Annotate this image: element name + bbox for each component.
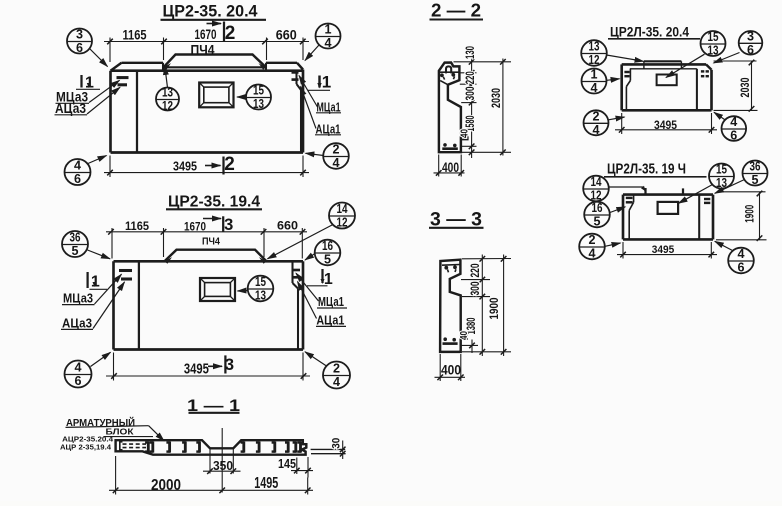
svg-text:3495: 3495 — [654, 118, 677, 132]
svg-text:2: 2 — [589, 233, 596, 247]
svg-text:15: 15 — [255, 275, 266, 289]
svg-text:4: 4 — [325, 36, 332, 50]
svg-text:660: 660 — [277, 220, 298, 232]
svg-text:2000: 2000 — [151, 477, 181, 494]
svg-text:ЦР2-35. 20.4: ЦР2-35. 20.4 — [163, 2, 259, 21]
svg-text:4: 4 — [591, 81, 598, 95]
svg-text:4: 4 — [333, 375, 340, 389]
svg-text:36: 36 — [750, 160, 761, 174]
svg-text:13: 13 — [589, 40, 600, 54]
svg-text:2030: 2030 — [489, 88, 503, 108]
svg-text:14: 14 — [337, 202, 348, 216]
svg-text:13: 13 — [162, 86, 173, 100]
svg-text:3: 3 — [224, 216, 233, 234]
svg-text:40: 40 — [458, 331, 470, 340]
svg-text:1670: 1670 — [184, 222, 206, 234]
svg-text:АЦа1: АЦа1 — [316, 313, 344, 328]
svg-text:4: 4 — [74, 159, 81, 173]
svg-text:400: 400 — [441, 362, 461, 378]
svg-text:МЦа3: МЦа3 — [63, 291, 93, 306]
svg-text:6: 6 — [74, 172, 81, 186]
svg-text:1900: 1900 — [745, 205, 757, 223]
svg-text:660: 660 — [276, 28, 297, 43]
svg-text:6: 6 — [747, 43, 754, 57]
svg-text:2: 2 — [333, 143, 340, 157]
svg-text:3495: 3495 — [184, 361, 209, 378]
svg-text:5: 5 — [324, 253, 331, 267]
svg-text:130: 130 — [465, 46, 477, 59]
svg-text:350: 350 — [213, 458, 233, 473]
svg-text:4: 4 — [738, 247, 745, 261]
svg-text:40: 40 — [458, 129, 470, 138]
svg-text:3495: 3495 — [173, 159, 197, 174]
svg-text:5: 5 — [594, 215, 601, 229]
svg-text:12: 12 — [589, 53, 600, 67]
svg-text:3: 3 — [225, 356, 234, 374]
svg-text:220: 220 — [465, 71, 477, 84]
svg-text:1495: 1495 — [254, 475, 278, 492]
svg-text:1670: 1670 — [195, 27, 217, 42]
svg-text:1900: 1900 — [487, 297, 501, 319]
svg-text:15: 15 — [716, 163, 727, 177]
svg-text:2030: 2030 — [740, 78, 752, 98]
svg-text:4: 4 — [730, 115, 737, 129]
svg-text:4: 4 — [593, 123, 600, 137]
svg-text:300: 300 — [470, 282, 482, 296]
svg-text:6: 6 — [75, 374, 82, 388]
svg-text:5: 5 — [752, 173, 759, 187]
svg-text:2: 2 — [333, 362, 340, 376]
svg-text:4: 4 — [333, 156, 340, 170]
svg-text:5: 5 — [72, 244, 79, 258]
svg-text:3495: 3495 — [652, 244, 675, 256]
svg-text:1165: 1165 — [123, 28, 147, 43]
svg-text:6: 6 — [738, 261, 745, 275]
svg-text:2: 2 — [225, 23, 236, 44]
svg-text:2: 2 — [224, 154, 235, 175]
svg-text:145: 145 — [278, 457, 296, 471]
svg-text:13: 13 — [708, 44, 719, 58]
svg-text:1: 1 — [591, 68, 598, 82]
svg-text:16: 16 — [592, 201, 603, 215]
svg-text:1165: 1165 — [125, 221, 150, 233]
svg-text:14: 14 — [591, 175, 602, 189]
svg-text:3: 3 — [76, 28, 83, 42]
svg-text:15: 15 — [708, 30, 719, 44]
svg-text:2 — 2: 2 — 2 — [431, 0, 481, 21]
svg-text:АЦа3: АЦа3 — [55, 101, 86, 116]
svg-text:ПЧ4: ПЧ4 — [202, 236, 220, 248]
svg-text:30: 30 — [331, 438, 343, 449]
svg-text:6: 6 — [76, 41, 83, 55]
svg-text:12: 12 — [162, 99, 173, 113]
svg-text:АЦа3: АЦа3 — [62, 316, 92, 331]
svg-text:ПЧ4: ПЧ4 — [191, 42, 215, 58]
svg-text:300: 300 — [465, 87, 477, 101]
svg-text:6: 6 — [730, 129, 737, 143]
svg-text:ЦР2-35. 19.4: ЦР2-35. 19.4 — [168, 194, 260, 211]
svg-text:13: 13 — [253, 97, 264, 111]
svg-text:1: 1 — [325, 23, 332, 37]
svg-text:1: 1 — [322, 73, 331, 92]
svg-text:2: 2 — [593, 109, 600, 123]
svg-text:АЦР 2-35,19.4: АЦР 2-35,19.4 — [60, 443, 112, 452]
svg-text:4: 4 — [589, 247, 596, 261]
svg-text:16: 16 — [322, 239, 333, 253]
svg-text:ЦР2Л-35. 20.4: ЦР2Л-35. 20.4 — [610, 25, 689, 40]
svg-text:12: 12 — [337, 216, 348, 230]
svg-text:МЦа1: МЦа1 — [318, 294, 344, 309]
svg-text:4: 4 — [75, 361, 82, 375]
svg-text:3: 3 — [747, 29, 754, 43]
svg-text:13: 13 — [255, 289, 266, 303]
svg-text:220: 220 — [470, 264, 482, 278]
svg-text:ЦР2Л-35. 19 Ч: ЦР2Л-35. 19 Ч — [607, 161, 686, 178]
svg-text:15: 15 — [253, 84, 264, 98]
svg-text:36: 36 — [70, 231, 81, 245]
